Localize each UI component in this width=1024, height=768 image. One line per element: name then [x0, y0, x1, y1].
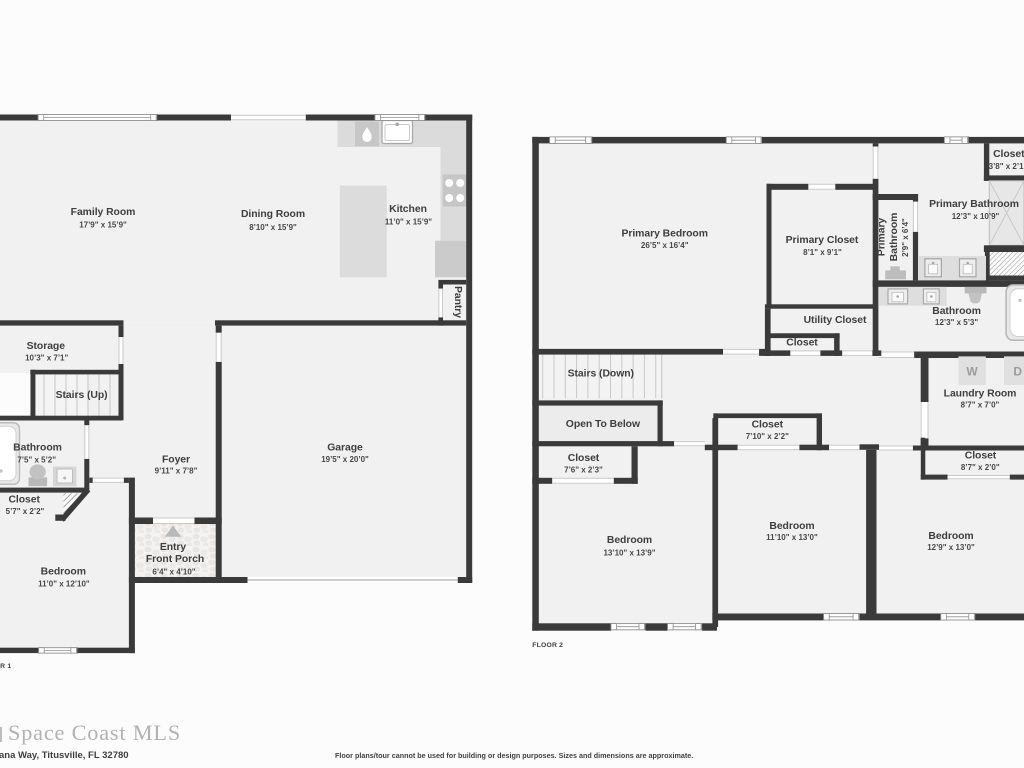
svg-text:10’3" x 7’1": 10’3" x 7’1" — [25, 353, 68, 362]
svg-text:Bedroom: Bedroom — [41, 567, 86, 578]
svg-text:Pantry: Pantry — [452, 286, 463, 318]
svg-text:13’10" x 13’9": 13’10" x 13’9" — [603, 549, 655, 558]
svg-text:12’3" x 10’9": 12’3" x 10’9" — [952, 212, 1000, 221]
svg-text:Dining Room: Dining Room — [241, 209, 305, 220]
svg-text:7’5" x 5’2": 7’5" x 5’2" — [17, 455, 56, 464]
svg-text:Closet: Closet — [568, 453, 600, 464]
svg-text:7’10" x 2’2": 7’10" x 2’2" — [746, 432, 789, 441]
svg-text:5’7" x 2’2": 5’7" x 2’2" — [6, 507, 45, 516]
svg-text:Front Porch: Front Porch — [146, 554, 204, 565]
svg-text:Closet: Closet — [965, 451, 997, 462]
svg-text:6’4" x 4’10": 6’4" x 4’10" — [152, 567, 195, 576]
svg-text:Bedroom: Bedroom — [769, 521, 814, 532]
svg-text:Utility Closet: Utility Closet — [804, 315, 867, 326]
svg-text:7’6" x 2’3": 7’6" x 2’3" — [564, 466, 603, 475]
svg-text:8’7" x 7’0": 8’7" x 7’0" — [961, 401, 1000, 410]
svg-text:Kitchen: Kitchen — [389, 204, 427, 215]
svg-text:Closet: Closet — [786, 338, 818, 349]
svg-text:ana Way, Titusville, FL 32780: ana Way, Titusville, FL 32780 — [0, 750, 129, 761]
svg-text:Space Coast MLS: Space Coast MLS — [8, 720, 181, 745]
svg-text:Primary: Primary — [877, 218, 888, 257]
svg-text:Open To Below: Open To Below — [566, 419, 641, 430]
svg-text:8’7" x 2’0": 8’7" x 2’0" — [961, 463, 1000, 472]
svg-text:Primary Bedroom: Primary Bedroom — [621, 228, 707, 239]
svg-text:11’0" x 12’10": 11’0" x 12’10" — [38, 579, 90, 588]
svg-text:W: W — [966, 365, 978, 379]
svg-text:17’9" x 15’9": 17’9" x 15’9" — [79, 221, 127, 230]
svg-text:Closet: Closet — [8, 495, 40, 506]
svg-text:11’10" x 13’0": 11’10" x 13’0" — [766, 533, 818, 542]
svg-text:D: D — [1013, 365, 1022, 379]
svg-text:FLOOR 2: FLOOR 2 — [532, 642, 563, 649]
svg-text:Foyer: Foyer — [162, 454, 190, 465]
svg-text:Bedroom: Bedroom — [928, 531, 973, 542]
svg-text:Laundry Room: Laundry Room — [944, 388, 1017, 399]
svg-text:Closet: Closet — [993, 149, 1024, 160]
svg-text:Stairs (Down): Stairs (Down) — [568, 368, 634, 379]
svg-text:3’8" x 2’1": 3’8" x 2’1" — [989, 162, 1024, 171]
svg-text:Floor plans/tour cannot be use: Floor plans/tour cannot be used for buil… — [335, 751, 693, 760]
svg-text:Entry: Entry — [160, 542, 187, 553]
svg-text:Bedroom: Bedroom — [607, 535, 652, 546]
svg-text:Garage: Garage — [327, 443, 363, 454]
svg-text:Bathroom: Bathroom — [889, 213, 900, 262]
svg-text:26’5" x 16’4": 26’5" x 16’4" — [641, 241, 689, 250]
svg-text:19’5" x 20’0": 19’5" x 20’0" — [321, 455, 369, 464]
svg-text:8’10" x 15’9": 8’10" x 15’9" — [249, 223, 297, 232]
svg-text:Bathroom: Bathroom — [13, 443, 62, 454]
svg-text:9’11" x 7’8": 9’11" x 7’8" — [155, 466, 198, 475]
svg-text:Stairs (Up): Stairs (Up) — [56, 390, 108, 401]
svg-text:12’3" x 5’3": 12’3" x 5’3" — [935, 318, 978, 327]
svg-text:Bathroom: Bathroom — [932, 306, 981, 317]
svg-text:Family Room: Family Room — [71, 207, 136, 218]
svg-text:Storage: Storage — [27, 341, 66, 352]
svg-text:2’9" x 6’4": 2’9" x 6’4" — [901, 218, 910, 257]
svg-text:Primary Bathroom: Primary Bathroom — [929, 199, 1019, 210]
svg-text:Closet: Closet — [752, 420, 784, 431]
svg-text:11’0" x 15’9": 11’0" x 15’9" — [385, 217, 432, 226]
svg-text:8’1" x 9’1": 8’1" x 9’1" — [803, 248, 842, 257]
svg-text:12’9" x 13’0": 12’9" x 13’0" — [927, 543, 975, 552]
svg-text:Primary Closet: Primary Closet — [786, 235, 859, 246]
svg-text:FLOOR 1: FLOOR 1 — [0, 663, 11, 670]
